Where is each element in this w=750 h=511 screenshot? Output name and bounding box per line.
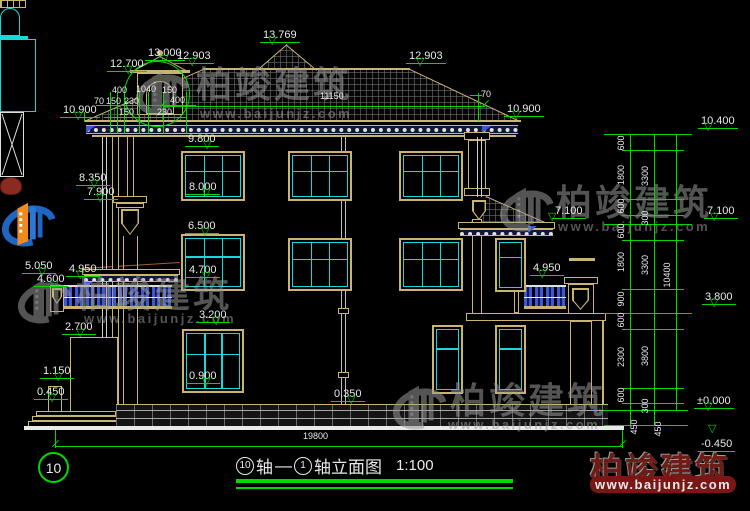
mullion bbox=[440, 243, 442, 286]
mullion bbox=[222, 156, 224, 196]
level-triangle-icon: ▽ bbox=[203, 140, 211, 151]
dim-line bbox=[622, 289, 684, 290]
level-triangle-icon: ▽ bbox=[704, 402, 712, 413]
dim-line bbox=[163, 106, 485, 107]
dimension-label-vertical: 450 bbox=[653, 421, 663, 436]
level-value: 9.800 bbox=[185, 133, 219, 147]
dimension-label-vertical: 300 bbox=[640, 210, 650, 225]
dimension-label-vertical: 1800 bbox=[616, 165, 626, 185]
level-marker: 3.800▽ bbox=[702, 287, 736, 305]
level-triangle-icon: ▽ bbox=[710, 298, 718, 309]
entrance-door-glass bbox=[0, 39, 36, 112]
dim-line bbox=[622, 199, 684, 200]
dimension-label-vertical: 3800 bbox=[640, 346, 650, 366]
dimension-label: 70 bbox=[481, 89, 491, 99]
level-marker: 12.903▽ bbox=[174, 46, 214, 64]
level-marker: -0.450▽ bbox=[698, 434, 735, 452]
dim-line bbox=[55, 446, 622, 447]
level-triangle-icon: ▽ bbox=[160, 54, 168, 65]
window-glazing bbox=[403, 155, 459, 197]
dimension-label: 70 bbox=[94, 96, 104, 106]
dimension-label: 150 bbox=[106, 96, 121, 106]
right-corner-line-a bbox=[477, 137, 478, 197]
level-triangle-icon: ▽ bbox=[188, 57, 196, 68]
dimension-label-vertical: 2300 bbox=[616, 347, 626, 367]
entrance-door-leaf bbox=[0, 112, 24, 177]
transom bbox=[186, 171, 240, 173]
drawing-title: 10 轴 — 1 轴立面图 1:100 bbox=[236, 453, 434, 478]
level-marker: 10.900▽ bbox=[504, 99, 544, 117]
dim-line bbox=[186, 92, 187, 134]
dimension-label-vertical: 1800 bbox=[616, 252, 626, 272]
level-value: 3.800 bbox=[702, 291, 736, 305]
level-triangle-icon: ▽ bbox=[548, 212, 556, 223]
level-marker: 7.100▽ bbox=[552, 201, 586, 219]
level-marker: 1.150▽ bbox=[40, 361, 74, 379]
window-2f-2 bbox=[288, 238, 352, 291]
dimension-label-vertical: 300 bbox=[640, 398, 650, 413]
axis-circle-10: 10 bbox=[236, 457, 254, 475]
dim-line bbox=[622, 388, 684, 389]
dim-line bbox=[622, 403, 684, 404]
dim-line bbox=[478, 93, 479, 121]
level-triangle-icon: ▽ bbox=[124, 65, 132, 76]
dim-line bbox=[139, 92, 140, 134]
level-marker: 2.700▽ bbox=[62, 317, 96, 335]
level-triangle-icon: ▽ bbox=[76, 270, 84, 281]
window-glazing bbox=[403, 242, 459, 287]
transom bbox=[293, 259, 347, 261]
column-neck bbox=[116, 203, 144, 208]
dimension-label-vertical: 600 bbox=[616, 387, 626, 402]
watermark-brand-text: 柏竣建筑 bbox=[450, 382, 606, 420]
dim-line bbox=[622, 215, 684, 216]
watermark-logo-icon bbox=[391, 378, 449, 434]
porch-pedestal-cap bbox=[564, 277, 598, 284]
level-marker: 4.950▽ bbox=[530, 258, 564, 276]
column-top-line-b bbox=[133, 137, 134, 196]
level-triangle-icon: ▽ bbox=[538, 269, 546, 280]
mullion bbox=[440, 156, 442, 196]
dimension-label: 150 bbox=[119, 107, 134, 117]
level-marker: 0.450▽ bbox=[34, 382, 68, 400]
dimension-label-vertical: 900 bbox=[616, 291, 626, 306]
level-triangle-icon: ▽ bbox=[416, 57, 424, 68]
eave-corbel-left bbox=[0, 0, 26, 8]
dim-line bbox=[676, 134, 677, 410]
mullion bbox=[311, 156, 313, 196]
level-triangle-icon: ▽ bbox=[710, 212, 718, 223]
window-3f-3 bbox=[399, 151, 463, 201]
dimension-label-vertical: 450 bbox=[629, 419, 639, 434]
door-brace-lines bbox=[1, 113, 23, 176]
level-triangle-icon: ▽ bbox=[201, 227, 209, 238]
level-marker: 12.903▽ bbox=[406, 46, 446, 64]
brand-logo-icon bbox=[391, 378, 449, 434]
level-marker: 3.200▽ bbox=[196, 305, 230, 323]
title-underline-thick bbox=[236, 479, 513, 483]
column-top-line-a bbox=[127, 137, 128, 196]
level-triangle-icon: ▽ bbox=[96, 193, 104, 204]
level-marker: 4.950▽ bbox=[66, 259, 100, 277]
level-triangle-icon: ▽ bbox=[212, 316, 220, 327]
eave-bracket-left bbox=[86, 126, 95, 133]
level-triangle-icon: ▽ bbox=[74, 111, 82, 122]
dim-line bbox=[622, 329, 684, 330]
watermark-logo-icon bbox=[498, 180, 556, 236]
watermark-url-text: www.baijunjz.com bbox=[200, 106, 352, 121]
level-marker: 10.400▽ bbox=[698, 111, 738, 129]
mullion bbox=[422, 156, 424, 196]
entrance-door-frame bbox=[70, 337, 118, 415]
level-triangle-icon: ▽ bbox=[202, 271, 210, 282]
mullion bbox=[311, 243, 313, 286]
mullion bbox=[329, 243, 331, 286]
dimension-label-vertical: 600 bbox=[616, 198, 626, 213]
brand-logo-icon bbox=[0, 195, 58, 251]
downspout-bracket-upper bbox=[338, 308, 349, 314]
level-marker: 13.769▽ bbox=[260, 25, 300, 43]
dim-line bbox=[622, 150, 684, 151]
level-marker: 7.900▽ bbox=[84, 182, 118, 200]
level-value: 4.950 bbox=[530, 262, 564, 276]
porch-urn bbox=[0, 177, 22, 195]
level-value: 7.100 bbox=[552, 205, 586, 219]
level-marker: 8.000▽ bbox=[186, 177, 220, 195]
window-2f-wing bbox=[495, 238, 526, 292]
dim-line bbox=[622, 240, 684, 241]
level-triangle-icon: ▽ bbox=[76, 328, 84, 339]
window-3f-2 bbox=[288, 151, 352, 201]
dimension-label: 400 bbox=[112, 85, 127, 95]
downspout-bracket-lower bbox=[338, 372, 349, 378]
level-marker: 9.800▽ bbox=[185, 129, 219, 147]
dim-line bbox=[148, 92, 149, 134]
dimension-label: 1040 bbox=[136, 84, 156, 94]
dim-line bbox=[654, 134, 655, 425]
axis-circle-1: 1 bbox=[294, 457, 312, 475]
dimension-label-vertical: 3300 bbox=[640, 255, 650, 275]
title-axis-word: 轴 bbox=[256, 453, 273, 478]
porch-balustrade bbox=[524, 285, 566, 309]
title-scale: 1:100 bbox=[396, 457, 434, 474]
level-marker: 4.700▽ bbox=[186, 260, 220, 278]
column-capital bbox=[113, 196, 147, 203]
level-triangle-icon: ▽ bbox=[347, 395, 355, 406]
dimension-label-vertical: 600 bbox=[616, 135, 626, 150]
transom bbox=[404, 171, 458, 173]
level-marker: ±0.000▽ bbox=[694, 391, 734, 409]
dimension-label: 230 bbox=[157, 107, 172, 117]
level-marker: 0.900▽ bbox=[186, 366, 220, 384]
level-value: -0.450 bbox=[698, 438, 735, 452]
level-triangle-icon: ▽ bbox=[704, 122, 712, 133]
transom bbox=[186, 256, 240, 258]
transom bbox=[500, 257, 521, 259]
axis-bubble-10: 10 bbox=[38, 452, 69, 483]
dimension-label-vertical: 10400 bbox=[662, 262, 672, 287]
roof-linework bbox=[0, 0, 750, 39]
mullion bbox=[422, 243, 424, 286]
mullion bbox=[221, 334, 223, 388]
dimension-label: 11150 bbox=[320, 91, 344, 101]
dimension-label: 400 bbox=[170, 95, 185, 105]
watermark-url-text: www.baijunjz.com bbox=[558, 219, 710, 234]
level-triangle-icon: ▽ bbox=[48, 393, 56, 404]
dim-line bbox=[55, 430, 56, 448]
transom bbox=[437, 348, 458, 350]
dim-line bbox=[604, 425, 688, 426]
watermark-url-text: www.baijunjz.com bbox=[448, 417, 600, 432]
cupola-arch-window-glass bbox=[0, 8, 20, 36]
dimension-label: 150 bbox=[162, 85, 177, 95]
level-triangle-icon: ▽ bbox=[202, 377, 210, 388]
transom bbox=[187, 354, 239, 356]
right-corner-line-b bbox=[481, 137, 482, 197]
dimension-label: 230 bbox=[124, 96, 139, 106]
level-triangle-icon: ▽ bbox=[268, 36, 276, 47]
level-marker: 4.600▽ bbox=[34, 269, 68, 287]
corner-logo-icon bbox=[0, 195, 62, 253]
title-dash: — bbox=[275, 456, 292, 476]
main-eave-bottom-edge bbox=[92, 135, 516, 137]
window-glazing bbox=[292, 155, 348, 197]
transom bbox=[293, 171, 347, 173]
dimension-label-vertical: 3300 bbox=[640, 166, 650, 186]
level-triangle-icon: ▽ bbox=[202, 188, 210, 199]
transom bbox=[500, 348, 521, 350]
wing-floor-slab bbox=[466, 313, 606, 321]
level-marker: 6.500▽ bbox=[185, 216, 219, 234]
level-value: 12.903 bbox=[406, 50, 446, 64]
level-value: ±0.000 bbox=[694, 395, 734, 409]
level-triangle-icon: ▽ bbox=[50, 280, 58, 291]
window-2f-3 bbox=[399, 238, 463, 291]
dimension-label-vertical: 600 bbox=[616, 223, 626, 238]
level-triangle-icon: ▽ bbox=[708, 424, 716, 435]
level-value: 10.900 bbox=[504, 103, 544, 117]
window-glazing bbox=[292, 242, 348, 287]
porch-urn-rim bbox=[569, 258, 595, 261]
dimension-label: 19800 bbox=[303, 431, 328, 441]
mullion bbox=[329, 156, 331, 196]
elevation-drawing-canvas: 柏竣建筑www.baijunjz.com 柏竣建筑www.baijunjz.co… bbox=[0, 0, 750, 511]
transom bbox=[404, 259, 458, 261]
level-marker: 0.350▽ bbox=[331, 384, 365, 402]
title-suffix: 轴立面图 bbox=[314, 453, 382, 478]
dim-line bbox=[630, 134, 631, 425]
corner-url-text: www.baijunjz.com bbox=[590, 476, 736, 493]
dim-line bbox=[622, 430, 623, 448]
level-value: 13.769 bbox=[260, 29, 300, 43]
brand-logo-icon bbox=[498, 180, 556, 236]
window-glazing bbox=[499, 242, 522, 288]
dimension-label-vertical: 600 bbox=[616, 312, 626, 327]
level-marker: 12.700▽ bbox=[107, 54, 147, 72]
level-marker: 7.100▽ bbox=[704, 201, 738, 219]
level-triangle-icon: ▽ bbox=[512, 110, 520, 121]
title-underline-thin bbox=[236, 487, 513, 489]
